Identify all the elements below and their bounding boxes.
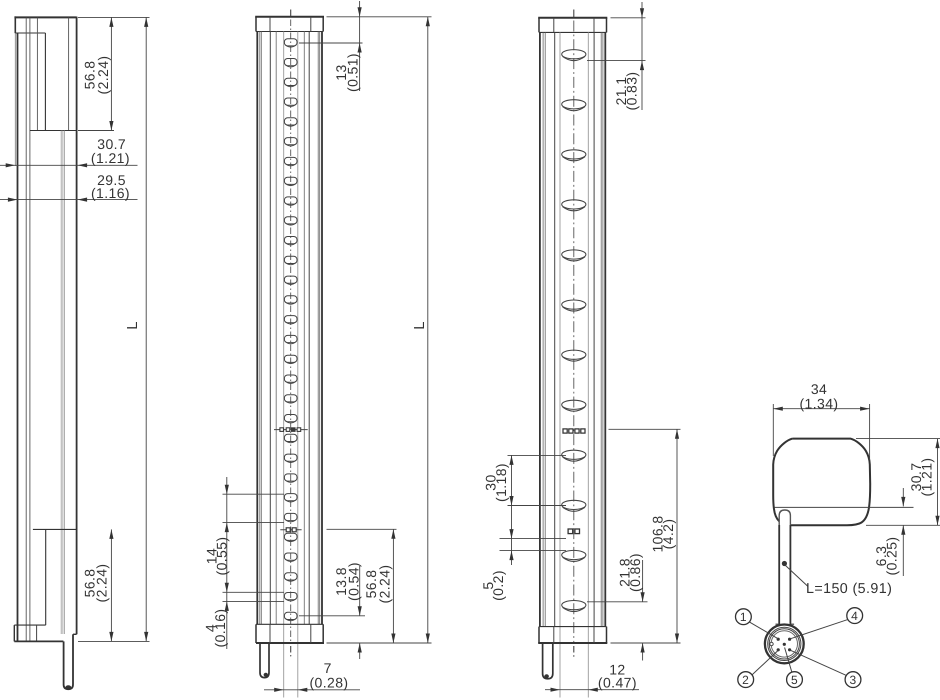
svg-text:(1.21): (1.21) — [919, 458, 935, 497]
svg-text:5: 5 — [791, 673, 798, 687]
svg-text:(0.2): (0.2) — [490, 570, 506, 601]
svg-text:(0.55): (0.55) — [214, 537, 230, 576]
svg-text:L: L — [125, 321, 141, 329]
svg-text:(1.21): (1.21) — [91, 150, 130, 166]
svg-text:L: L — [412, 321, 428, 329]
svg-text:(0.86): (0.86) — [627, 553, 643, 592]
svg-text:(2.24): (2.24) — [93, 564, 109, 603]
svg-text:(1.34): (1.34) — [800, 396, 839, 412]
svg-text:(0.54): (0.54) — [346, 562, 362, 601]
svg-text:34: 34 — [811, 381, 827, 397]
svg-text:(0.47): (0.47) — [598, 674, 637, 690]
svg-text:2: 2 — [742, 673, 749, 687]
svg-text:(0.51): (0.51) — [344, 53, 360, 92]
svg-text:3: 3 — [849, 673, 856, 687]
svg-text:(2.24): (2.24) — [377, 565, 393, 604]
svg-text:(0.83): (0.83) — [624, 72, 640, 111]
svg-text:(2.24): (2.24) — [95, 56, 111, 95]
svg-text:7: 7 — [324, 660, 332, 676]
svg-text:(0.28): (0.28) — [310, 675, 349, 691]
svg-text:(1.18): (1.18) — [493, 463, 509, 502]
svg-text:1: 1 — [740, 610, 747, 624]
svg-text:(4.2): (4.2) — [660, 519, 676, 550]
svg-text:4: 4 — [851, 609, 858, 623]
svg-text:(0.16): (0.16) — [212, 609, 228, 648]
svg-text:(0.25): (0.25) — [883, 537, 899, 576]
svg-text:L=150 (5.91): L=150 (5.91) — [806, 581, 892, 597]
svg-text:(1.16): (1.16) — [91, 185, 130, 201]
